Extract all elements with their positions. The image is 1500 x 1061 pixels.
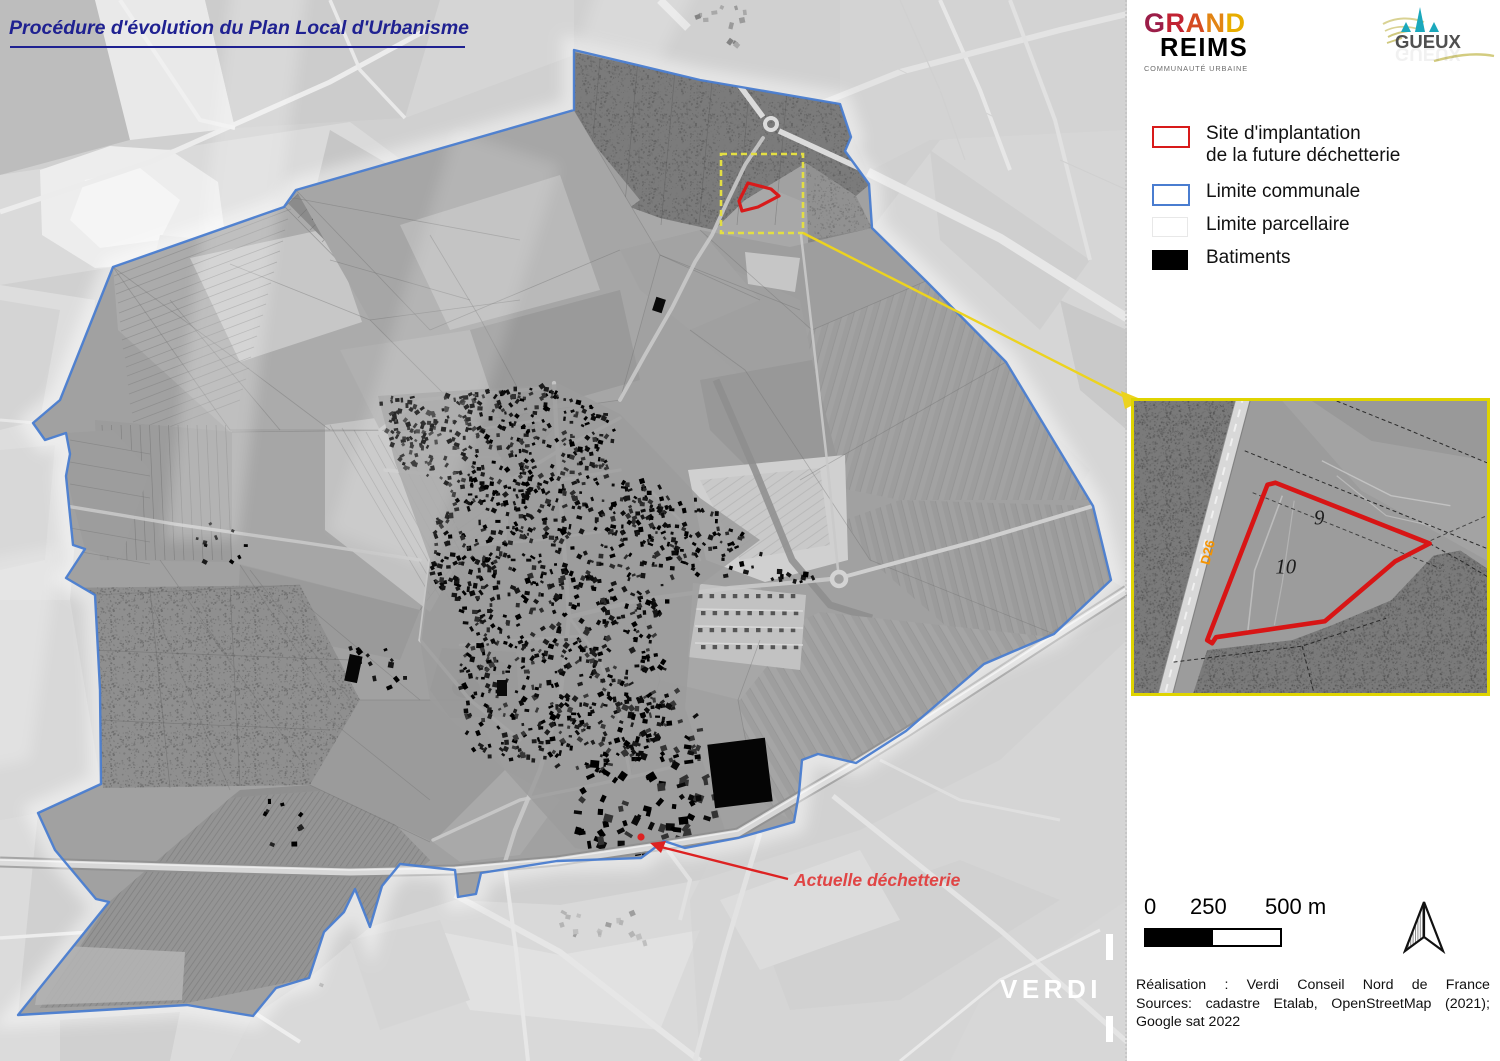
svg-text:10: 10 — [1275, 554, 1296, 578]
svg-text:GUEUX: GUEUX — [1395, 44, 1461, 65]
svg-text:9: 9 — [1314, 506, 1325, 530]
